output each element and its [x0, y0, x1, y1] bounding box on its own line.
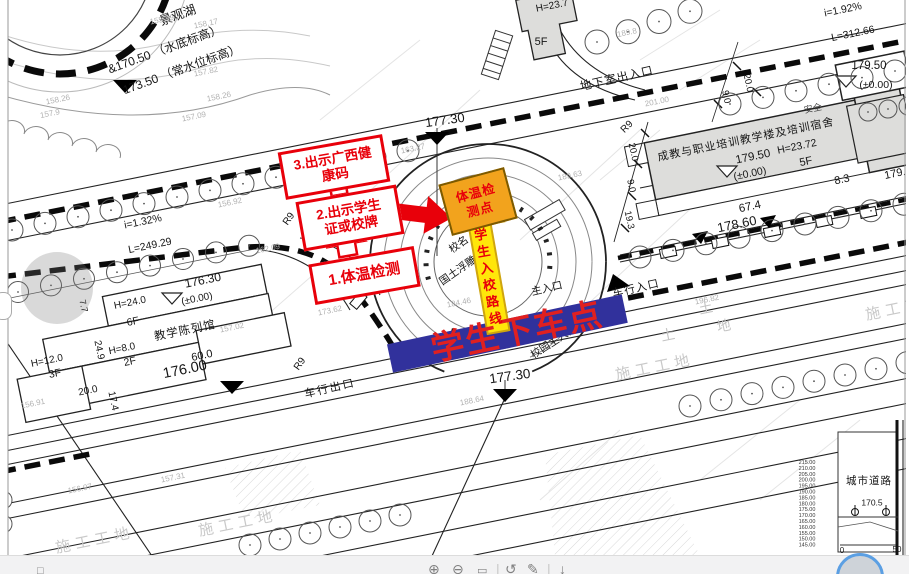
plan-label: 179.50 — [851, 60, 886, 72]
tree-center-dot — [762, 97, 764, 99]
edit-icon[interactable]: ✎ — [527, 562, 539, 574]
tree-center-dot — [705, 243, 707, 245]
tree-center-dot — [248, 245, 250, 247]
tree-center-dot — [782, 387, 784, 389]
rotate-icon[interactable]: ↺ — [505, 562, 517, 574]
step-1-text: 1.体温检测 — [327, 260, 402, 291]
tree-center-dot — [275, 176, 277, 178]
tree-center-dot — [751, 393, 753, 395]
tree-center-dot — [176, 196, 178, 198]
tree-center-dot — [182, 258, 184, 260]
tree-center-dot — [44, 223, 46, 225]
select-icon[interactable]: □ — [37, 564, 44, 574]
tree-center-dot — [279, 538, 281, 540]
plan-label: 3F — [48, 367, 62, 381]
tree-center-dot — [875, 368, 877, 370]
download-icon[interactable]: ↓ — [559, 562, 566, 574]
tree-center-dot — [795, 90, 797, 92]
tree-center-dot — [309, 532, 311, 534]
plan-label: 城市道路 — [846, 474, 892, 487]
tree-center-dot — [720, 399, 722, 401]
tree-center-dot — [149, 265, 151, 267]
tree-center-dot — [771, 230, 773, 232]
profile-scale-label: 145.00 — [799, 543, 816, 549]
tree-center-dot — [658, 21, 660, 23]
fit-icon[interactable]: ▭ — [477, 564, 487, 574]
site-plan-viewer: 215.00210.00205.00200.00195.00190.00185.… — [0, 0, 909, 574]
tree-center-dot — [11, 229, 13, 231]
plan-label: (±0.00) — [859, 79, 892, 91]
tree-center-dot — [77, 216, 79, 218]
tree-center-dot — [242, 183, 244, 185]
colonnade-dot — [547, 266, 552, 269]
plan-label: 5F — [798, 155, 813, 169]
colonnade-dot — [423, 263, 428, 266]
plan-label: 6F — [126, 315, 140, 329]
plan-label: 0 — [840, 546, 845, 555]
tree-center-dot — [894, 70, 896, 72]
tree-center-dot — [249, 544, 251, 546]
tree-center-dot — [813, 380, 815, 382]
tree-center-dot — [143, 203, 145, 205]
tree-center-dot — [738, 236, 740, 238]
zoom-out-icon[interactable]: ⊖ — [452, 562, 464, 574]
viewer-nav-circle[interactable] — [21, 252, 93, 324]
toolbar-divider: | — [547, 562, 551, 574]
viewer-toolbar: □ ⊕ ⊖ ▭ | ↺ ✎ | ↓ — [0, 555, 909, 574]
tree-center-dot — [596, 41, 598, 43]
zoom-in-icon[interactable]: ⊕ — [428, 562, 440, 574]
tree-center-dot — [339, 526, 341, 528]
tree-center-dot — [870, 210, 872, 212]
tree-center-dot — [689, 10, 691, 12]
plan-label: 170.5 — [861, 497, 883, 507]
tree-center-dot — [837, 217, 839, 219]
edge-handle[interactable] — [0, 292, 12, 320]
tree-center-dot — [639, 256, 641, 258]
tree-center-dot — [369, 520, 371, 522]
tree-center-dot — [215, 252, 217, 254]
tree-center-dot — [116, 271, 118, 273]
tree-center-dot — [729, 103, 731, 105]
tree-center-dot — [672, 250, 674, 252]
tree-center-dot — [399, 514, 401, 516]
tree-center-dot — [828, 83, 830, 85]
road-profile-legend — [838, 420, 903, 556]
tree-center-dot — [887, 108, 889, 110]
tree-center-dot — [844, 374, 846, 376]
tree-center-dot — [689, 405, 691, 407]
tree-center-dot — [804, 223, 806, 225]
profile-scale-numbers: 215.00210.00205.00200.00195.00190.00185.… — [799, 460, 816, 549]
plan-label: 50 — [893, 545, 902, 554]
tree-center-dot — [867, 111, 869, 113]
tree-center-dot — [110, 209, 112, 211]
tree-center-dot — [17, 291, 19, 293]
plan-label: 5F — [535, 36, 548, 48]
toolbar-divider: | — [496, 562, 500, 574]
plan-label: 2F — [123, 355, 137, 369]
tree-center-dot — [209, 190, 211, 192]
step-3-text-line2: 康码 — [321, 165, 350, 186]
